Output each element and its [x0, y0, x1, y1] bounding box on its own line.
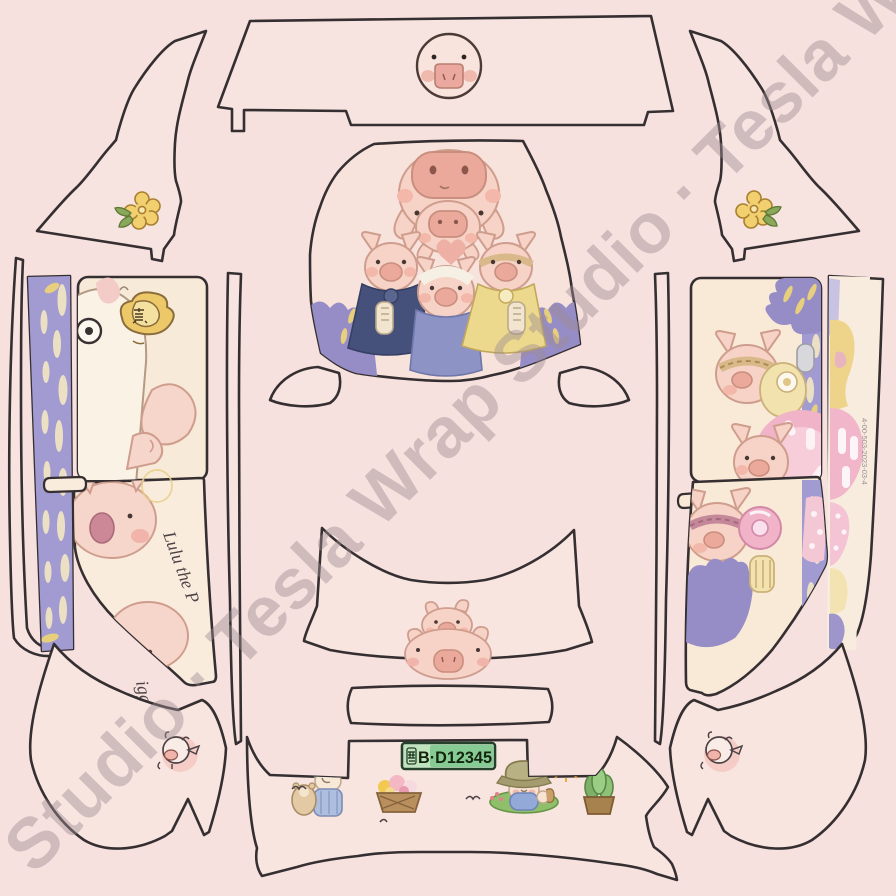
svg-text:B·D12345: B·D12345	[418, 748, 492, 767]
svg-text:4-00-503-2023-03-4: 4-00-503-2023-03-4	[860, 418, 869, 485]
